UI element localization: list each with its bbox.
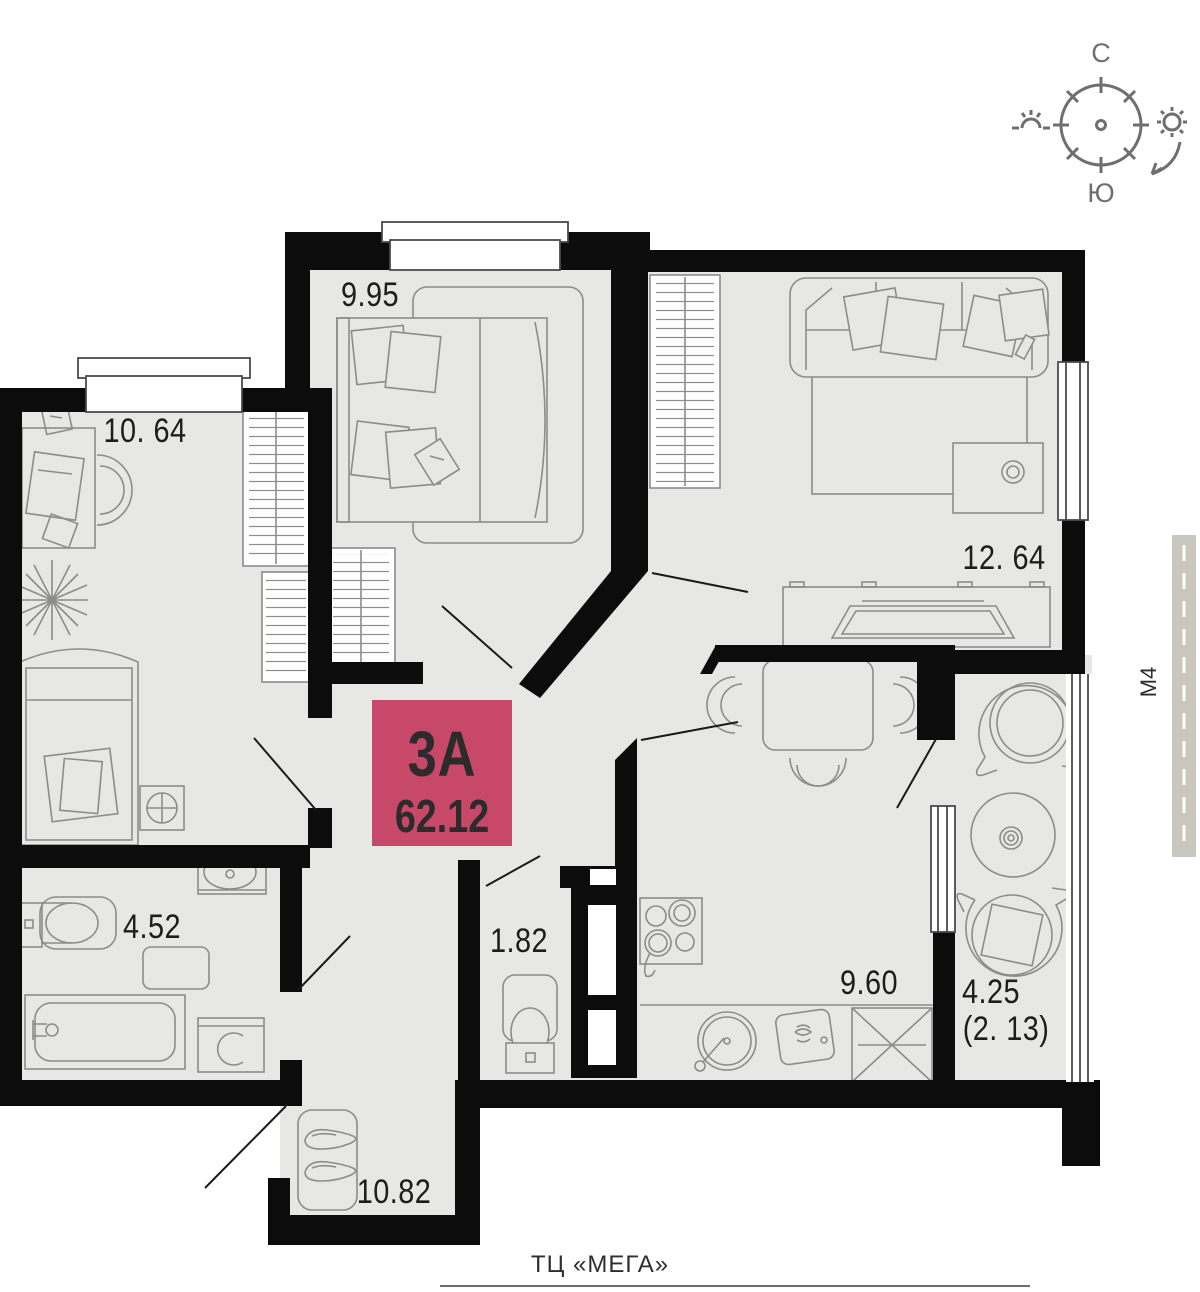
wardrobe (243, 410, 310, 566)
wardrobe (327, 548, 395, 665)
road-m4: М4 (1136, 535, 1196, 857)
cabinet (143, 947, 209, 989)
double-bed (337, 318, 547, 522)
washing-machine (198, 1018, 264, 1072)
stove (640, 898, 702, 976)
compass: С Ю (1012, 38, 1187, 208)
wc-furniture (503, 975, 557, 1073)
unit-label[interactable]: 3А 62.12 (372, 700, 512, 846)
entrance-door (205, 1106, 286, 1188)
balcony-glazing (1066, 674, 1094, 1082)
balcony-area-reduced: (2. 13) (963, 1009, 1049, 1048)
toilet (20, 897, 116, 949)
kids-room-area: 10. 64 (104, 411, 187, 450)
bathtub (25, 995, 185, 1069)
sofa (790, 278, 1049, 377)
bedroom-window (382, 222, 568, 270)
tv-console (783, 582, 1050, 647)
living-room-window (1058, 362, 1088, 520)
wardrobe (650, 275, 720, 488)
ac-unit (140, 786, 184, 830)
unit-total-area: 62.12 (395, 790, 489, 841)
floor-plan-drawing: 3А 62.12 9.95 10. 64 12. 64 4.52 1.82 9.… (0, 0, 1200, 1292)
side-table (953, 443, 1043, 513)
sun-path-arrow (1152, 142, 1180, 174)
compass-south-label: Ю (1087, 178, 1114, 208)
balcony-area: 4.25 (962, 972, 1020, 1011)
kitchen-area: 9.60 (840, 963, 898, 1002)
floor-plan-canvas: 3А 62.12 9.95 10. 64 12. 64 4.52 1.82 9.… (0, 0, 1200, 1292)
cutting-board (775, 1008, 835, 1065)
sunset-icon (1012, 110, 1050, 128)
compass-north-label: С (1091, 38, 1111, 68)
single-bed (20, 649, 138, 845)
living-room-area: 12. 64 (963, 538, 1046, 577)
unit-type: 3А (408, 719, 477, 790)
mall-label: ТЦ «МЕГА» (531, 1251, 669, 1278)
bedroom-area: 9.95 (341, 275, 399, 314)
bathroom-area: 4.52 (123, 907, 181, 946)
hallway-area: 10.82 (357, 1172, 431, 1211)
sun-icon (1157, 107, 1187, 137)
wc-area: 1.82 (490, 921, 548, 960)
kitchen-balcony-window (931, 806, 955, 932)
shelf (262, 572, 310, 682)
road-label: М4 (1136, 667, 1161, 698)
bottom-landmark: ТЦ «МЕГА» (440, 1251, 1030, 1286)
kids-room-window (78, 358, 250, 412)
